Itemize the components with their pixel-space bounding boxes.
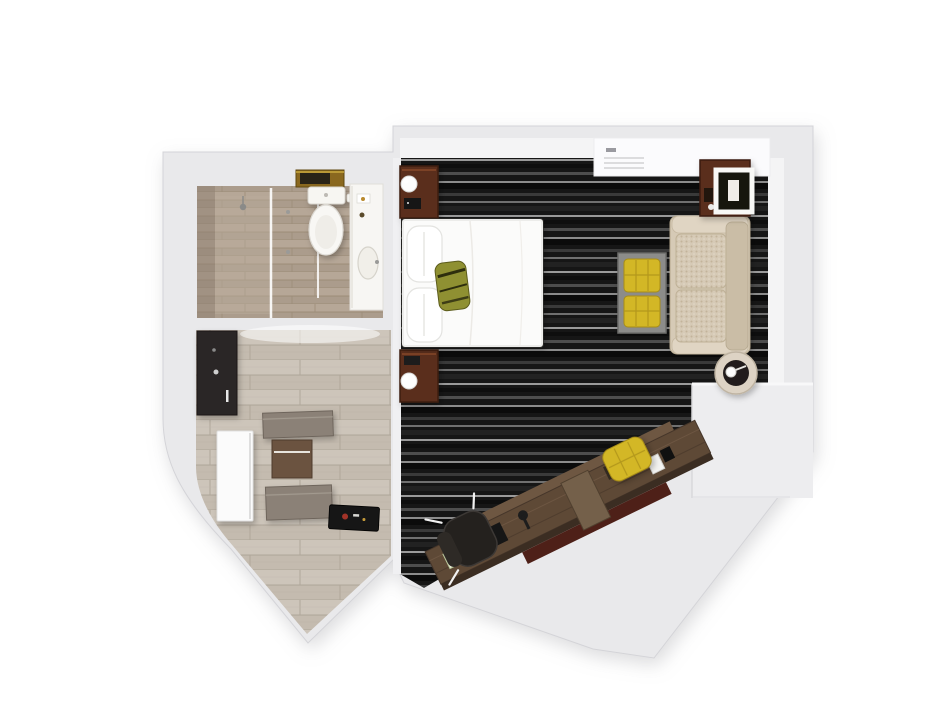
sofa xyxy=(670,216,750,354)
room-bathroom xyxy=(197,170,383,318)
sofa-seat-2 xyxy=(676,290,726,342)
shower-floor xyxy=(215,196,271,314)
sofa-back xyxy=(726,222,748,350)
minibar-cabinet xyxy=(197,331,237,415)
phone xyxy=(404,356,420,365)
side-table-lamp xyxy=(700,160,752,216)
nightstand-top xyxy=(400,166,438,218)
coffee-bench xyxy=(618,253,666,333)
upper-shelf xyxy=(263,411,334,438)
sink xyxy=(358,247,378,279)
vanity xyxy=(350,184,383,310)
wall-step-block xyxy=(692,384,813,498)
nightstand-bottom xyxy=(400,350,438,402)
bedside-lamp-top xyxy=(401,176,417,192)
floor-mat xyxy=(328,505,379,532)
round-table-lamp xyxy=(715,352,757,394)
lower-shelf xyxy=(265,485,332,520)
luggage-box xyxy=(272,440,312,478)
sofa-seat-1 xyxy=(676,234,726,288)
bed xyxy=(402,219,543,347)
right-wall-face xyxy=(768,158,784,386)
towel-shelf xyxy=(296,170,344,187)
floor-light-glow xyxy=(240,325,380,343)
clock xyxy=(404,198,421,209)
throw-pillow-olive xyxy=(434,260,471,311)
square-frame-lamp xyxy=(708,170,752,212)
bathroom-left-shade xyxy=(197,186,215,318)
bedside-lamp-bottom xyxy=(401,373,417,389)
floor-plan-image xyxy=(0,0,940,705)
entry-door xyxy=(217,431,253,521)
